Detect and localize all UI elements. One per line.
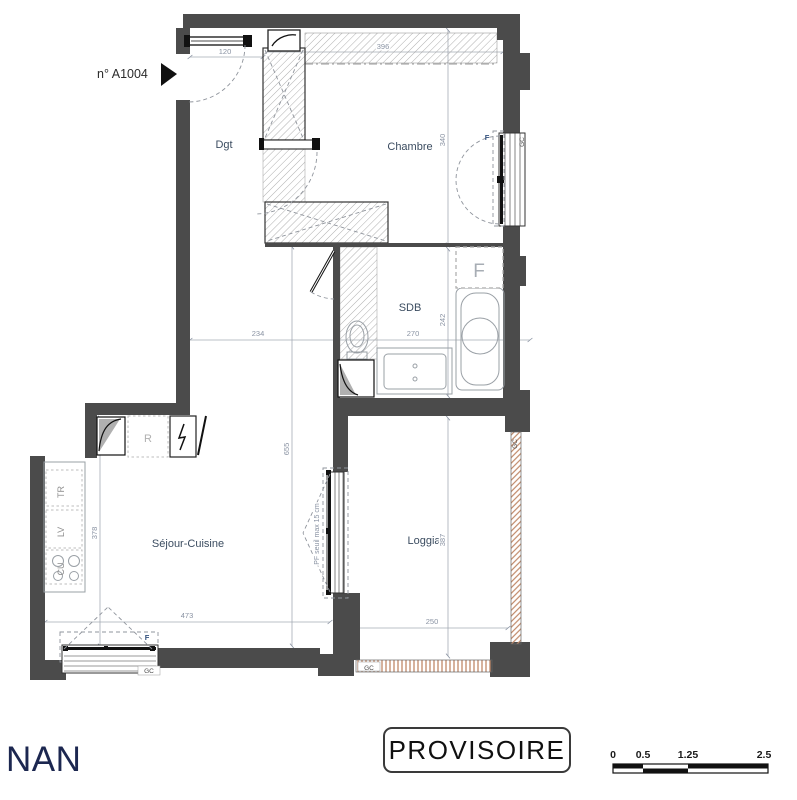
dim-sdb-height: 242 — [438, 314, 447, 327]
door-swing-arc — [188, 45, 245, 102]
sdb-door-arc — [311, 292, 334, 299]
bathtub-curve — [462, 318, 498, 354]
sdb-f-label: F — [473, 261, 485, 282]
sliding-door-panel — [262, 140, 317, 149]
room-label-loggia: Loggia — [407, 535, 441, 547]
floor-plan-sheet: n° A1004 Dgt Chambre SDB Séjour-Cuisine … — [0, 0, 797, 800]
panel-diagonal — [198, 416, 206, 455]
window-f-label-chambre: F — [485, 133, 490, 142]
electrical-panel — [170, 416, 196, 457]
pf-note-label: PF seuil max 15 cm — [314, 503, 321, 565]
kitchen-lv-label: LV — [56, 527, 66, 537]
kitchen-cu-label: CU — [56, 563, 66, 576]
loggia-porte-fenetre — [303, 468, 348, 598]
corner-glyph-box — [97, 417, 125, 455]
door-jamb-left — [184, 35, 190, 47]
dim-chambre-height: 340 — [438, 134, 447, 147]
bathtub — [456, 288, 504, 390]
dim-dgt-width: 234 — [252, 329, 265, 338]
hatch-duct-sdb — [340, 247, 377, 359]
sdb-door — [311, 251, 334, 299]
entrance-door — [161, 35, 252, 102]
scale-tick-0: 0 — [610, 749, 616, 761]
gc-label-loggia-bottom: GC — [364, 665, 374, 672]
floor-plan-drawing: n° A1004 Dgt Chambre SDB Séjour-Cuisine … — [0, 0, 797, 800]
room-label-sdb: SDB — [399, 302, 422, 314]
closet-dgt-vertical — [263, 48, 305, 140]
loggia-guardrails — [356, 432, 521, 672]
scale-tick-25: 2.5 — [757, 749, 772, 761]
room-label-dgt: Dgt — [215, 139, 232, 151]
washbasin — [384, 354, 446, 389]
vanity-counter — [377, 348, 452, 394]
gc-label-loggia-right: GC — [512, 439, 519, 449]
provisoire-stamp: PROVISOIRE — [383, 727, 571, 773]
vent-box-frame — [268, 30, 300, 51]
dim-sejour-width: 473 — [181, 611, 194, 620]
scale-tick-05: 0.5 — [636, 749, 651, 761]
gc-label-chambre: GC — [519, 137, 526, 147]
hatch-band-chambre-top — [305, 33, 497, 63]
scale-bar: 0 0.5 1.25 2.5 — [610, 749, 771, 773]
unit-number-label: n° A1004 — [97, 67, 148, 81]
fridge-r-label: R — [144, 433, 152, 445]
dim-kitchen-height: 378 — [90, 527, 99, 540]
window-hinge — [497, 176, 504, 183]
closet-dgt-horizontal — [265, 202, 388, 243]
window-glazing — [64, 647, 156, 650]
kitchen-tr-label: TR — [56, 486, 66, 498]
dim-loggia-height: 387 — [438, 534, 447, 547]
bathtub-inner — [461, 293, 499, 385]
entrance-arrow-icon — [161, 63, 177, 86]
room-label-sejour: Séjour-Cuisine — [152, 538, 224, 550]
sliding-door-cap-left — [259, 138, 264, 150]
chambre-window — [456, 131, 525, 226]
scale-tick-125: 1.25 — [678, 749, 699, 761]
room-label-chambre: Chambre — [387, 141, 432, 153]
dim-entry: 120 — [219, 47, 232, 56]
scale-seg-2 — [688, 764, 768, 769]
window-f-label-sejour: F — [145, 633, 150, 642]
sliding-door-cap-right — [312, 138, 320, 150]
dim-sdb-width: 270 — [407, 329, 420, 338]
dim-chambre-top: 396 — [377, 42, 390, 51]
window-swing-lines — [64, 607, 152, 649]
gc-label-sejour: GC — [144, 668, 154, 675]
dim-dgt-sejour-height: 655 — [282, 443, 291, 456]
vent-box — [268, 30, 300, 51]
scale-seg-1 — [613, 764, 643, 769]
scale-seg-3 — [643, 769, 688, 774]
logo-text: NAN — [6, 740, 81, 780]
dim-loggia-width: 250 — [426, 617, 439, 626]
door-jamb-right — [243, 35, 252, 47]
hatch-band-dgt — [263, 149, 305, 202]
guardrail-right — [511, 432, 521, 644]
sdb-door-leaf-inner — [311, 251, 334, 292]
shower-glyph-box — [338, 360, 374, 397]
